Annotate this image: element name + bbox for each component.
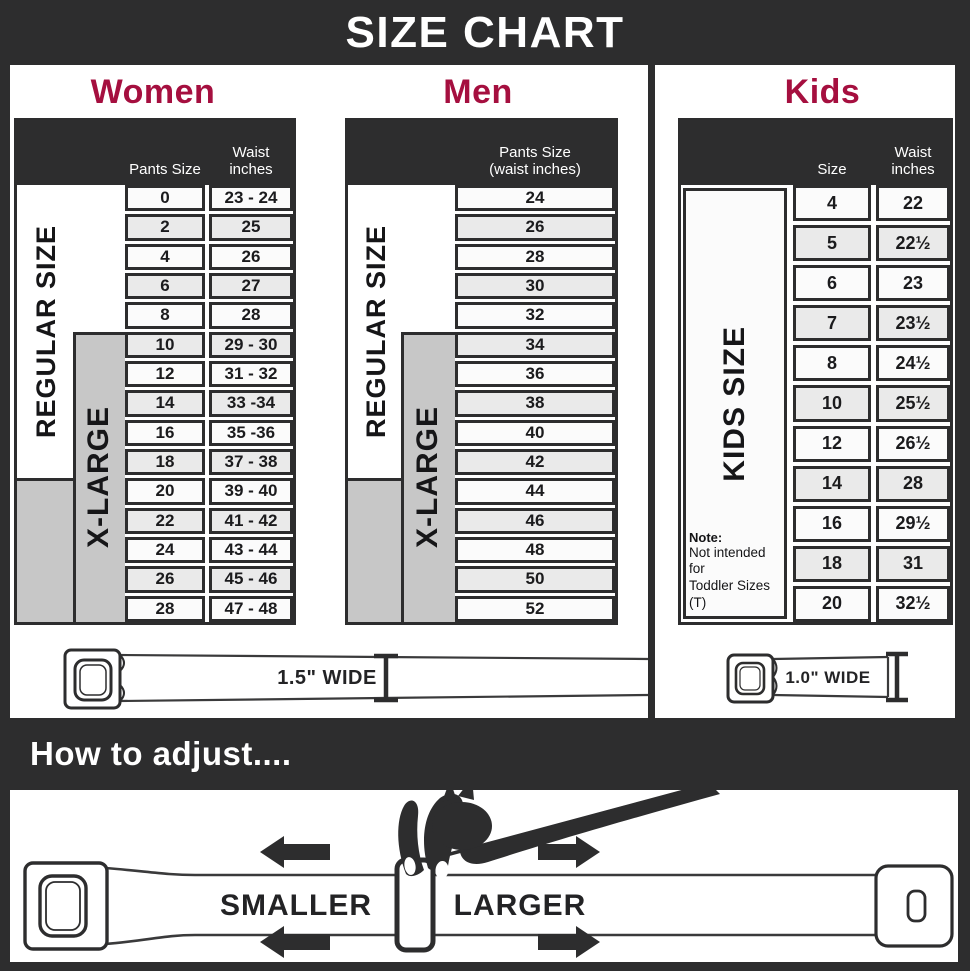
waist-cell: 39 - 40 — [209, 478, 293, 504]
waist-cell: 26½ — [876, 426, 950, 462]
pants-size-cell: 36 — [455, 361, 615, 387]
table-row: 6 27 — [125, 273, 293, 299]
belt-buckle-icon — [25, 863, 107, 949]
waist-cell: 37 - 38 — [209, 449, 293, 475]
pants-size-cell: 8 — [125, 302, 205, 328]
waist-cell: 31 — [876, 546, 950, 582]
waist-cell: 47 - 48 — [209, 596, 293, 622]
kids-note: Note: Not intended for Toddler Sizes (T) — [689, 530, 784, 613]
men-size-group-panel: REGULAR SIZE X-LARGE — [348, 185, 455, 622]
table-row: 48 — [455, 537, 615, 563]
pants-size-cell: 4 — [125, 244, 205, 270]
kids-title: Kids — [730, 70, 915, 114]
table-row: 30 — [455, 273, 615, 299]
waist-cell: 32½ — [876, 586, 950, 622]
table-row: 10 25½ — [793, 385, 950, 421]
women-size-group-panel: REGULAR SIZE X-LARGE — [17, 185, 125, 622]
women-table-header: Pants Size Waist inches — [17, 121, 293, 185]
table-row: 38 — [455, 390, 615, 416]
waist-cell: 23½ — [876, 305, 950, 341]
kids-size-group-panel: KIDS SIZE Note: Not intended for Toddler… — [683, 188, 787, 619]
table-row: 6 23 — [793, 265, 950, 301]
table-row: 28 47 - 48 — [125, 596, 293, 622]
waist-header: Waist inches — [209, 144, 293, 179]
table-row: 5 22½ — [793, 225, 950, 261]
pants-size-cell: 28 — [125, 596, 205, 622]
table-row: 32 — [455, 302, 615, 328]
smaller-label: SMALLER — [220, 889, 372, 922]
pants-size-cell: 46 — [455, 508, 615, 534]
table-row: 24 43 - 44 — [125, 537, 293, 563]
men-table-header: Pants Size (waist inches) — [348, 121, 615, 185]
table-row: 18 31 — [793, 546, 950, 582]
kids-size-cell: 6 — [793, 265, 871, 301]
kids-size-cell: 10 — [793, 385, 871, 421]
kids-size-cell: 16 — [793, 506, 871, 542]
waist-cell: 26 — [209, 244, 293, 270]
pants-size-cell: 22 — [125, 508, 205, 534]
table-row: 26 45 - 46 — [125, 566, 293, 592]
width-marker-icon — [886, 654, 908, 700]
table-row: 4 26 — [125, 244, 293, 270]
pants-size-cell: 50 — [455, 566, 615, 592]
table-row: 40 — [455, 420, 615, 446]
pants-size-cell: 2 — [125, 214, 205, 240]
waist-cell: 28 — [876, 466, 950, 502]
belt-tip — [876, 866, 952, 946]
waist-cell: 45 - 46 — [209, 566, 293, 592]
adjust-banner: How to adjust.... — [0, 718, 970, 790]
width-marker-icon — [374, 656, 398, 700]
adult-belt-illustration: 1.5" WIDE — [14, 636, 648, 716]
pants-size-cell: 28 — [455, 244, 615, 270]
pants-size-cell: 12 — [125, 361, 205, 387]
regular-size-label: REGULAR SIZE — [31, 225, 62, 438]
pants-size-cell: 16 — [125, 420, 205, 446]
waist-cell: 28 — [209, 302, 293, 328]
pants-size-cell: 18 — [125, 449, 205, 475]
pants-size-cell: 34 — [455, 332, 615, 358]
kids-size-cell: 18 — [793, 546, 871, 582]
women-size-rows: 0 23 - 24 2 25 4 26 6 27 8 28 — [125, 185, 293, 622]
belt-width-label: 1.0" WIDE — [785, 668, 870, 687]
men-title: Men — [388, 70, 568, 114]
table-row: 26 — [455, 214, 615, 240]
arrow-right-icon — [538, 926, 600, 958]
pants-size-cell: 38 — [455, 390, 615, 416]
table-row: 10 29 - 30 — [125, 332, 293, 358]
pants-size-cell: 10 — [125, 332, 205, 358]
table-row: 7 23½ — [793, 305, 950, 341]
table-row: 16 29½ — [793, 506, 950, 542]
waist-cell: 35 -36 — [209, 420, 293, 446]
x-large-label: X-LARGE — [82, 406, 116, 548]
kids-size-cell: 14 — [793, 466, 871, 502]
page-title: SIZE CHART — [346, 8, 625, 58]
pants-size-cell: 40 — [455, 420, 615, 446]
pants-size-cell: 52 — [455, 596, 615, 622]
table-row: 8 24½ — [793, 345, 950, 381]
x-large-label: X-LARGE — [411, 406, 445, 548]
table-row: 42 — [455, 449, 615, 475]
waist-cell: 29½ — [876, 506, 950, 542]
kids-size-cell: 5 — [793, 225, 871, 261]
arrow-left-icon — [260, 836, 330, 868]
adjust-title: How to adjust.... — [30, 735, 292, 773]
waist-cell: 22 — [876, 185, 950, 221]
table-row: 52 — [455, 596, 615, 622]
waist-cell: 41 - 42 — [209, 508, 293, 534]
table-row: 0 23 - 24 — [125, 185, 293, 211]
pants-size-cell: 42 — [455, 449, 615, 475]
table-row: 36 — [455, 361, 615, 387]
size-chart-banner: SIZE CHART — [0, 0, 970, 65]
table-row: 4 22 — [793, 185, 950, 221]
pants-size-cell: 48 — [455, 537, 615, 563]
belt-buckle-icon — [65, 650, 124, 708]
table-row: 22 41 - 42 — [125, 508, 293, 534]
pants-size-cell: 24 — [125, 537, 205, 563]
kids-waist-header: Waist inches — [876, 144, 950, 179]
table-row: 12 31 - 32 — [125, 361, 293, 387]
waist-cell: 43 - 44 — [209, 537, 293, 563]
pants-size-cell: 24 — [455, 185, 615, 211]
pants-size-cell: 44 — [455, 478, 615, 504]
kids-size-cell: 7 — [793, 305, 871, 341]
kids-table: Size Waist inches KIDS SIZE Note: Not in… — [678, 118, 953, 625]
men-size-rows: 24 26 28 30 32 34 36 38 — [455, 185, 615, 622]
table-row: 20 32½ — [793, 586, 950, 622]
kids-size-cell: 20 — [793, 586, 871, 622]
table-row: 44 — [455, 478, 615, 504]
kids-belt-illustration: 1.0" WIDE — [700, 642, 950, 714]
table-row: 50 — [455, 566, 615, 592]
pants-size-cell: 6 — [125, 273, 205, 299]
regular-size-label: REGULAR SIZE — [361, 225, 392, 438]
pants-size-cell: 32 — [455, 302, 615, 328]
pants-size-header: Pants Size — [125, 161, 205, 178]
table-row: 24 — [455, 185, 615, 211]
table-row: 12 26½ — [793, 426, 950, 462]
table-row: 46 — [455, 508, 615, 534]
table-row: 8 28 — [125, 302, 293, 328]
belt-buckle-icon — [728, 655, 777, 702]
table-row: 14 33 -34 — [125, 390, 293, 416]
waist-cell: 23 — [876, 265, 950, 301]
adjust-belt-illustration: SMALLER LARGER — [10, 790, 958, 962]
waist-cell: 25 — [209, 214, 293, 240]
kids-size-rows: 4 22 5 22½ 6 23 7 23½ 8 24½ — [793, 185, 950, 622]
women-title: Women — [58, 70, 248, 114]
table-row: 20 39 - 40 — [125, 478, 293, 504]
kids-table-header: Size Waist inches — [681, 121, 950, 185]
waist-cell: 25½ — [876, 385, 950, 421]
waist-cell: 29 - 30 — [209, 332, 293, 358]
larger-label: LARGER — [454, 889, 587, 922]
waist-cell: 31 - 32 — [209, 361, 293, 387]
belt-width-label: 1.5" WIDE — [277, 667, 377, 689]
kids-size-label: KIDS SIZE — [718, 326, 752, 482]
table-row: 16 35 -36 — [125, 420, 293, 446]
size-chart-page: SIZE CHART Women Men Kids Pants Size Wai… — [0, 0, 970, 971]
table-row: 18 37 - 38 — [125, 449, 293, 475]
waist-cell: 22½ — [876, 225, 950, 261]
arrow-left-icon — [260, 926, 330, 958]
table-row: 34 — [455, 332, 615, 358]
pants-size-cell: 30 — [455, 273, 615, 299]
kids-size-cell: 12 — [793, 426, 871, 462]
waist-cell: 27 — [209, 273, 293, 299]
kids-size-cell: 4 — [793, 185, 871, 221]
kids-size-cell: 8 — [793, 345, 871, 381]
men-pants-size-header: Pants Size (waist inches) — [455, 144, 615, 179]
men-table: Pants Size (waist inches) REGULAR SIZE X… — [345, 118, 618, 625]
pants-size-cell: 26 — [455, 214, 615, 240]
pants-size-cell: 14 — [125, 390, 205, 416]
table-row: 14 28 — [793, 466, 950, 502]
waist-cell: 23 - 24 — [209, 185, 293, 211]
waist-cell: 33 -34 — [209, 390, 293, 416]
pants-size-cell: 0 — [125, 185, 205, 211]
women-table: Pants Size Waist inches REGULAR SIZE X-L… — [14, 118, 296, 625]
waist-cell: 24½ — [876, 345, 950, 381]
table-row: 2 25 — [125, 214, 293, 240]
kids-size-header: Size — [793, 161, 871, 178]
table-row: 28 — [455, 244, 615, 270]
pants-size-cell: 20 — [125, 478, 205, 504]
pants-size-cell: 26 — [125, 566, 205, 592]
